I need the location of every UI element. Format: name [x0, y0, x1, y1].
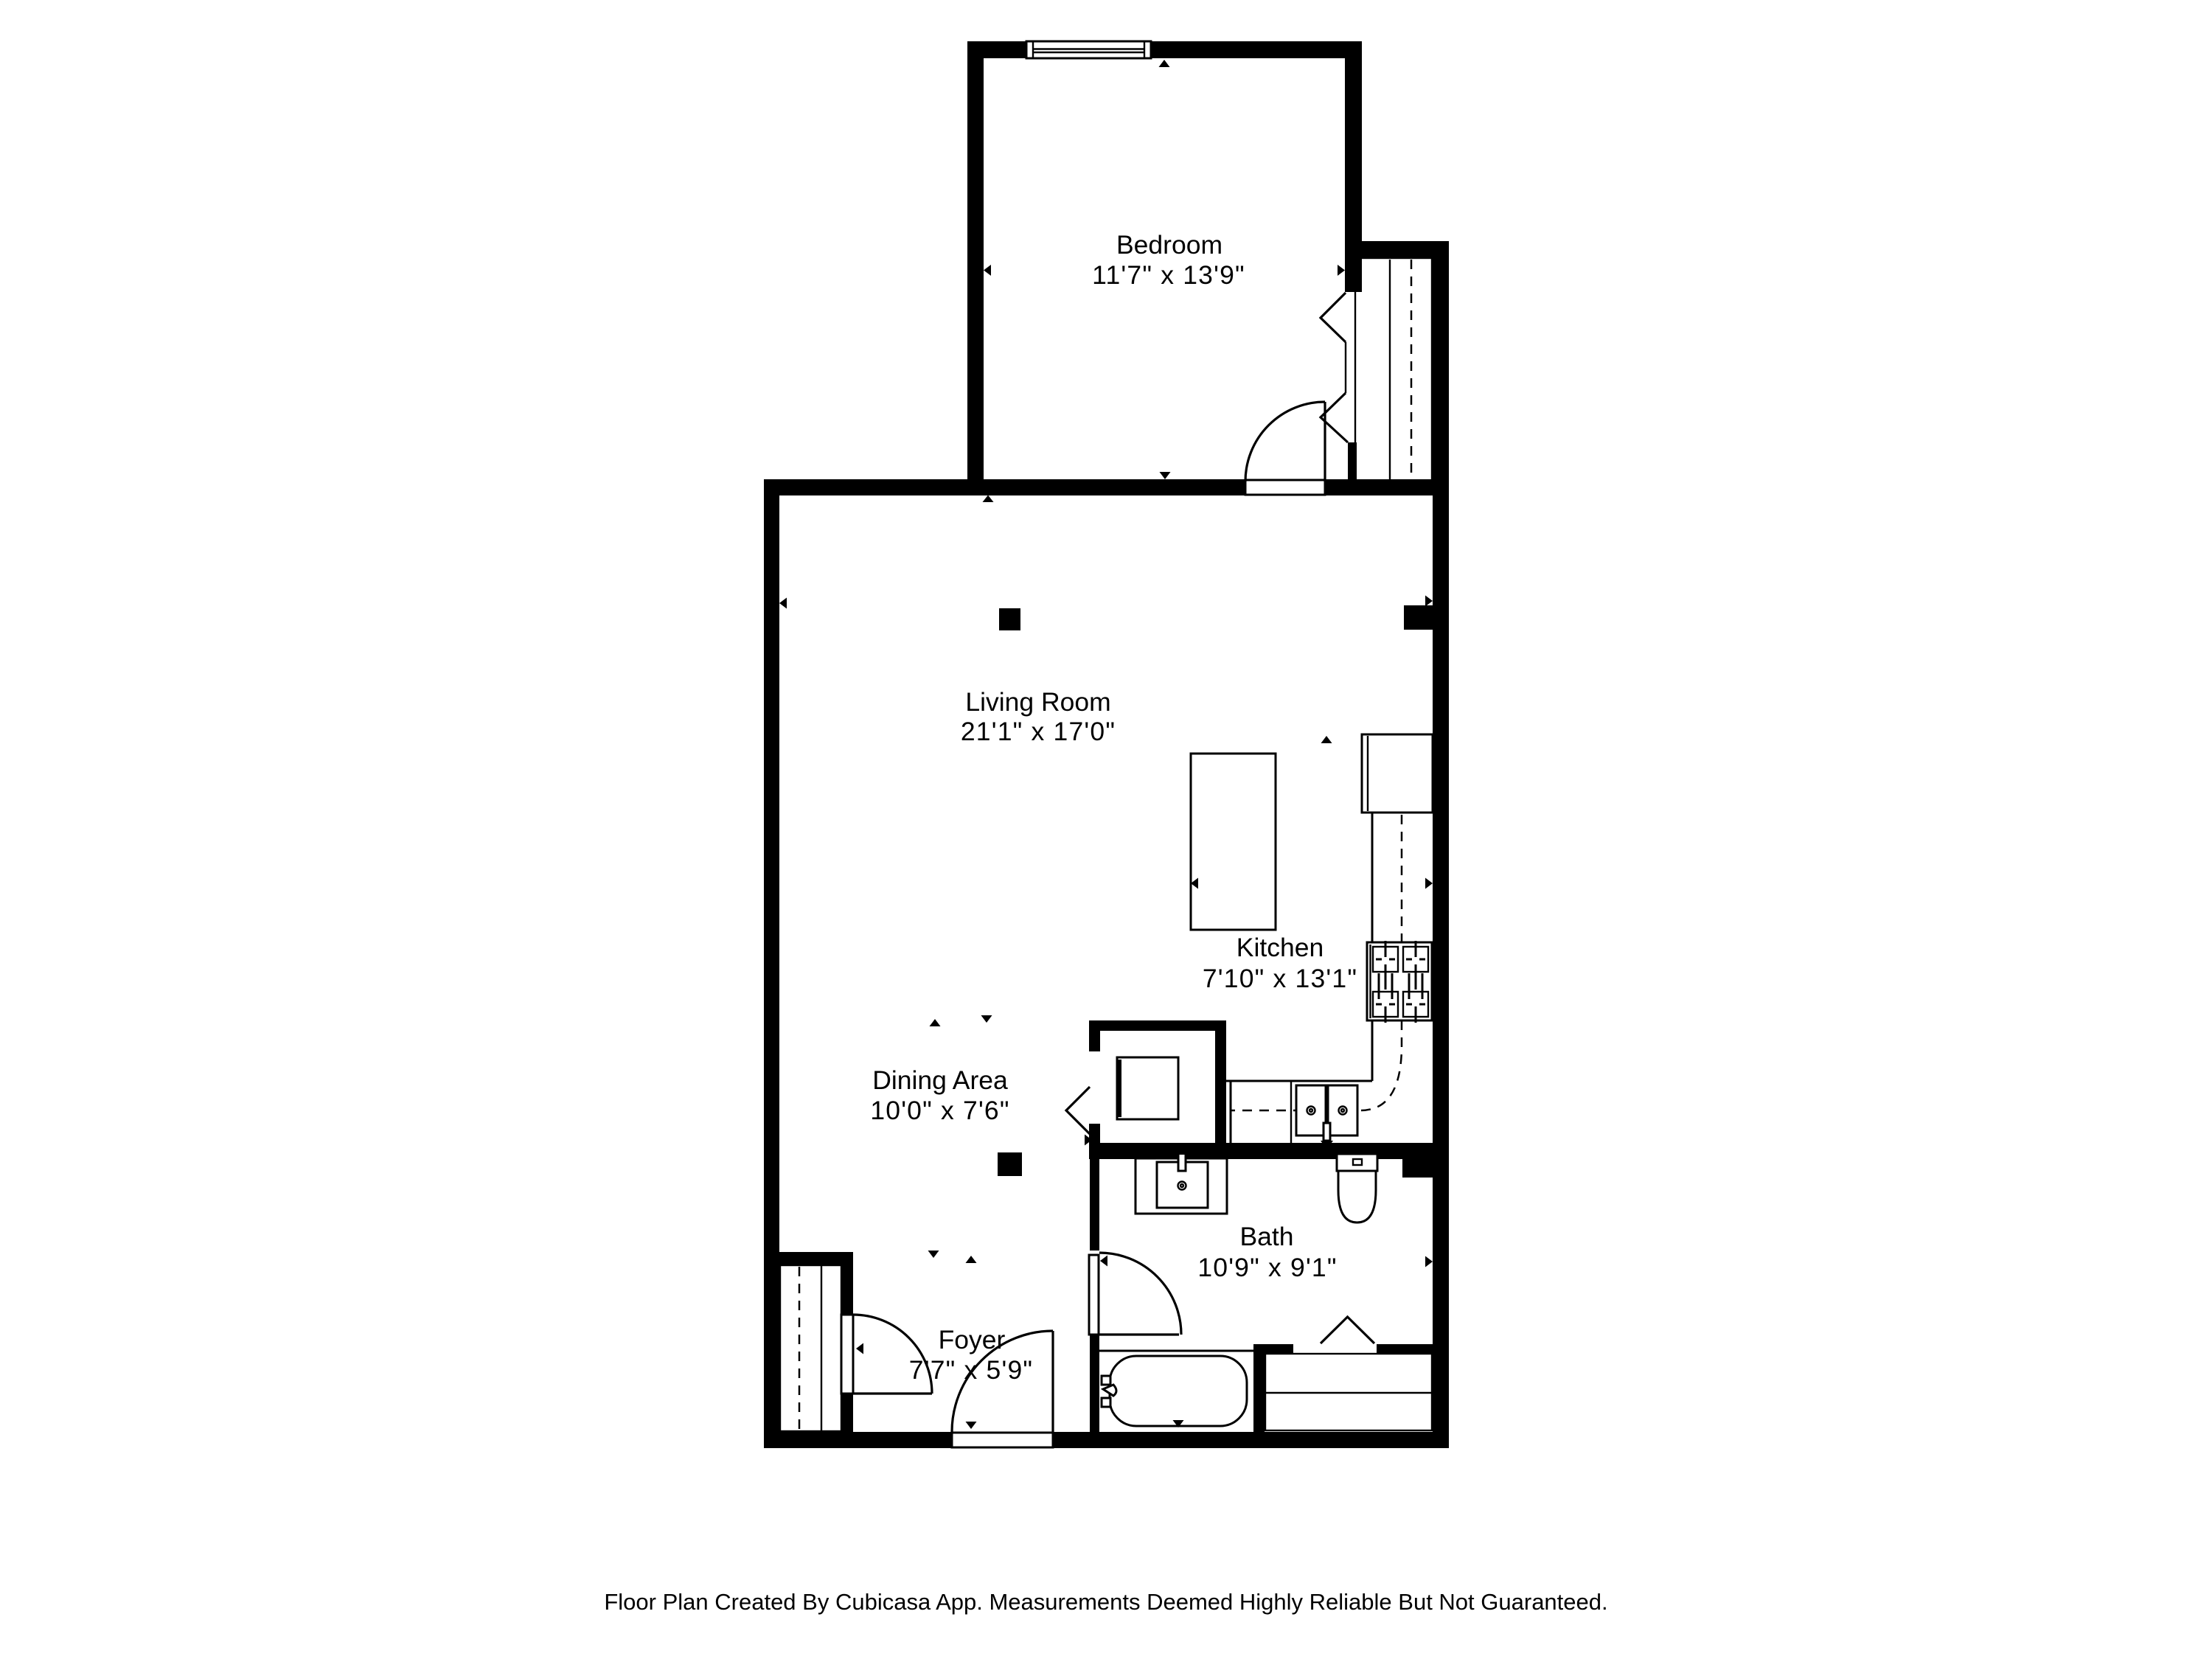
svg-text:7'10" x 13'1": 7'10" x 13'1" — [1203, 964, 1357, 993]
svg-text:Bedroom: Bedroom — [1116, 230, 1222, 260]
svg-text:21'1" x 17'0": 21'1" x 17'0" — [961, 717, 1116, 746]
svg-text:10'9" x 9'1": 10'9" x 9'1" — [1197, 1253, 1337, 1282]
svg-text:Foyer: Foyer — [939, 1325, 1006, 1354]
svg-text:Floor Plan Created By Cubicasa: Floor Plan Created By Cubicasa App. Meas… — [604, 1589, 1607, 1615]
svg-text:Bath: Bath — [1239, 1222, 1293, 1251]
svg-text:Kitchen: Kitchen — [1237, 933, 1324, 962]
svg-text:Dining Area: Dining Area — [872, 1065, 1008, 1095]
svg-text:11'7" x 13'9": 11'7" x 13'9" — [1092, 260, 1245, 290]
svg-text:Living Room: Living Room — [965, 687, 1110, 717]
svg-text:7'7" x 5'9": 7'7" x 5'9" — [909, 1355, 1033, 1385]
svg-text:10'0" x 7'6": 10'0" x 7'6" — [870, 1096, 1009, 1125]
